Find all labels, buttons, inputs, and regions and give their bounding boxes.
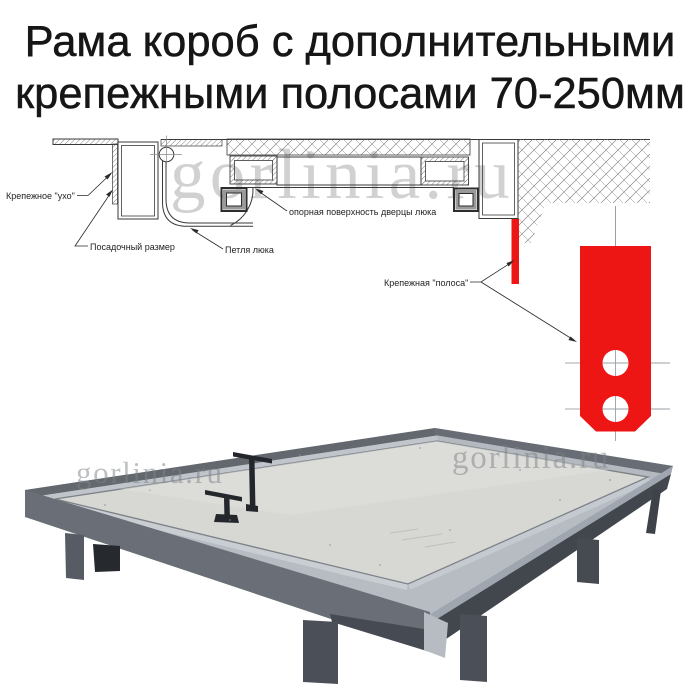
- svg-text:Крепежная "полоса": Крепежная "полоса": [384, 278, 468, 288]
- svg-text:Петля люка: Петля люка: [225, 245, 274, 255]
- svg-text:gorlinia.ru: gorlinia.ru: [76, 455, 224, 490]
- svg-text:опорная поверхность дверцы люк: опорная поверхность дверцы люка: [289, 207, 436, 217]
- svg-text:gorlinia.ru: gorlinia.ru: [452, 440, 610, 476]
- svg-text:Крепежное "ухо": Крепежное "ухо": [6, 191, 75, 201]
- svg-text:Посадочный размер: Посадочный размер: [90, 242, 175, 252]
